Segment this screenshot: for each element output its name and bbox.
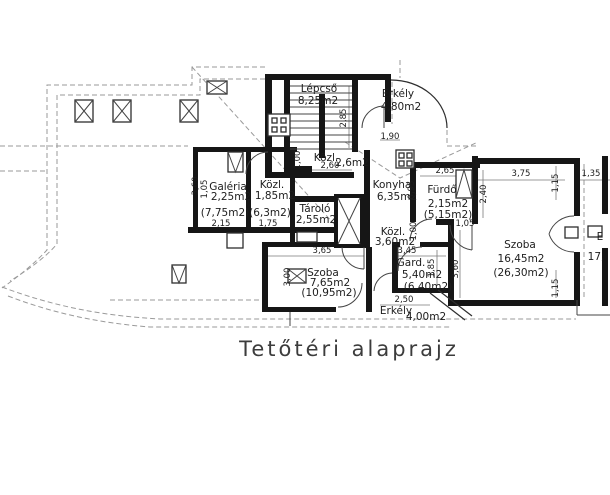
room-szoba-kis-gross: (10,95m2) bbox=[301, 287, 356, 299]
dim-jobb-w: 1,35 bbox=[582, 169, 601, 179]
dim-szoba-nagy-k1: 1,15 bbox=[551, 174, 561, 193]
shaft-box bbox=[297, 232, 317, 242]
room-erkely-also-area: 4,00m2 bbox=[406, 311, 446, 323]
dim-szoba-kis-w: 3,65 bbox=[313, 246, 332, 256]
roof-window-icon bbox=[207, 81, 227, 94]
room-furdo-name: Fürdő bbox=[427, 184, 456, 196]
floor-plan-sheet: Lépcső 8,25m2 Erkély 4,80m2 Közl. 2,6m2 … bbox=[0, 0, 610, 495]
roof-window-icon bbox=[180, 100, 198, 122]
floor-plan-drawing: Lépcső 8,25m2 Erkély 4,80m2 Közl. 2,6m2 … bbox=[0, 0, 610, 495]
roof-window-icon bbox=[172, 265, 186, 283]
dim-furdo-w: 2,65 bbox=[436, 166, 455, 176]
room-lepcso-name: Lépcső bbox=[301, 83, 337, 95]
dim-erkely-felso-w: 1,90 bbox=[381, 132, 400, 142]
dim-erkely-also-w: 2,50 bbox=[395, 295, 414, 305]
room-galeria-area: 2,25m2 bbox=[211, 191, 251, 203]
roof-window-icon bbox=[113, 100, 131, 122]
roof-window-icon bbox=[228, 152, 243, 172]
dim-galeria-h2: 1,05 bbox=[200, 180, 210, 199]
dim-furdo-ajto: 1,05 bbox=[456, 219, 475, 229]
roof-window-icon bbox=[456, 170, 472, 198]
room-erkely-felso-name: Erkély bbox=[382, 88, 414, 100]
dim-lepcso-h: 2,85 bbox=[339, 109, 349, 128]
dim-gard-h: 1,85 bbox=[427, 259, 437, 278]
dim-galeria-w: 2,15 bbox=[212, 219, 231, 229]
room-galeria-gross: (7,75m2) bbox=[201, 207, 249, 219]
chimney-icon bbox=[268, 114, 290, 136]
dim-kozl-lepcso-h: 1,00 bbox=[293, 151, 303, 170]
drawing-title: Tetőtéri alaprajz bbox=[238, 337, 459, 361]
room-kozl-lepcso-area: 2,6m2 bbox=[335, 157, 369, 169]
room-tarolo-area: 2,55m2 bbox=[296, 214, 336, 226]
dim-kozl-lepcso-w: 2,60 bbox=[321, 161, 340, 171]
room-gard-name: Gard. bbox=[397, 257, 426, 269]
room-szoba-nagy-name: Szoba bbox=[504, 239, 536, 251]
room-kozl-galeria-area: 1,85m2 bbox=[255, 190, 295, 202]
dim-szoba-nagy-k2: 1,15 bbox=[551, 279, 561, 298]
chimney-icon bbox=[396, 150, 414, 168]
room-erkely-jobb-area: 17, bbox=[588, 251, 605, 263]
room-erkely-jobb-name: E bbox=[597, 231, 604, 243]
dim-gard-w: 3,45 bbox=[398, 246, 417, 256]
dim-kozl-kozep-h: 1,00 bbox=[409, 222, 419, 241]
dim-szoba-nagy-ny: 3,60 bbox=[451, 260, 461, 279]
room-konyha-name: Konyha bbox=[373, 179, 412, 191]
room-gard-gross: (6,40m2) bbox=[404, 281, 452, 293]
elevator-shaft bbox=[336, 196, 362, 246]
dim-kozl-galeria-w: 1,75 bbox=[259, 219, 278, 229]
dim-furdo-h: 0,95 bbox=[407, 181, 417, 200]
room-erkely-felso-area: 4,80m2 bbox=[381, 101, 421, 113]
room-kozl-galeria-gross: (6,3m2) bbox=[249, 207, 291, 219]
pillar-box bbox=[227, 233, 243, 248]
dim-szoba-nagy-w: 3,75 bbox=[512, 169, 531, 179]
roof-window-icon bbox=[75, 100, 93, 122]
dim-furdo-h2: 2,40 bbox=[479, 185, 489, 204]
dim-szoba-kis-h: 3,00 bbox=[283, 268, 293, 287]
room-szoba-nagy-gross: (26,30m2) bbox=[493, 267, 548, 279]
room-labels: Lépcső 8,25m2 Erkély 4,80m2 Közl. 2,6m2 … bbox=[201, 83, 605, 323]
room-szoba-nagy-area: 16,45m2 bbox=[498, 253, 545, 265]
room-lepcso-area: 8,25m2 bbox=[298, 95, 338, 107]
door-threshold-box bbox=[565, 227, 578, 238]
